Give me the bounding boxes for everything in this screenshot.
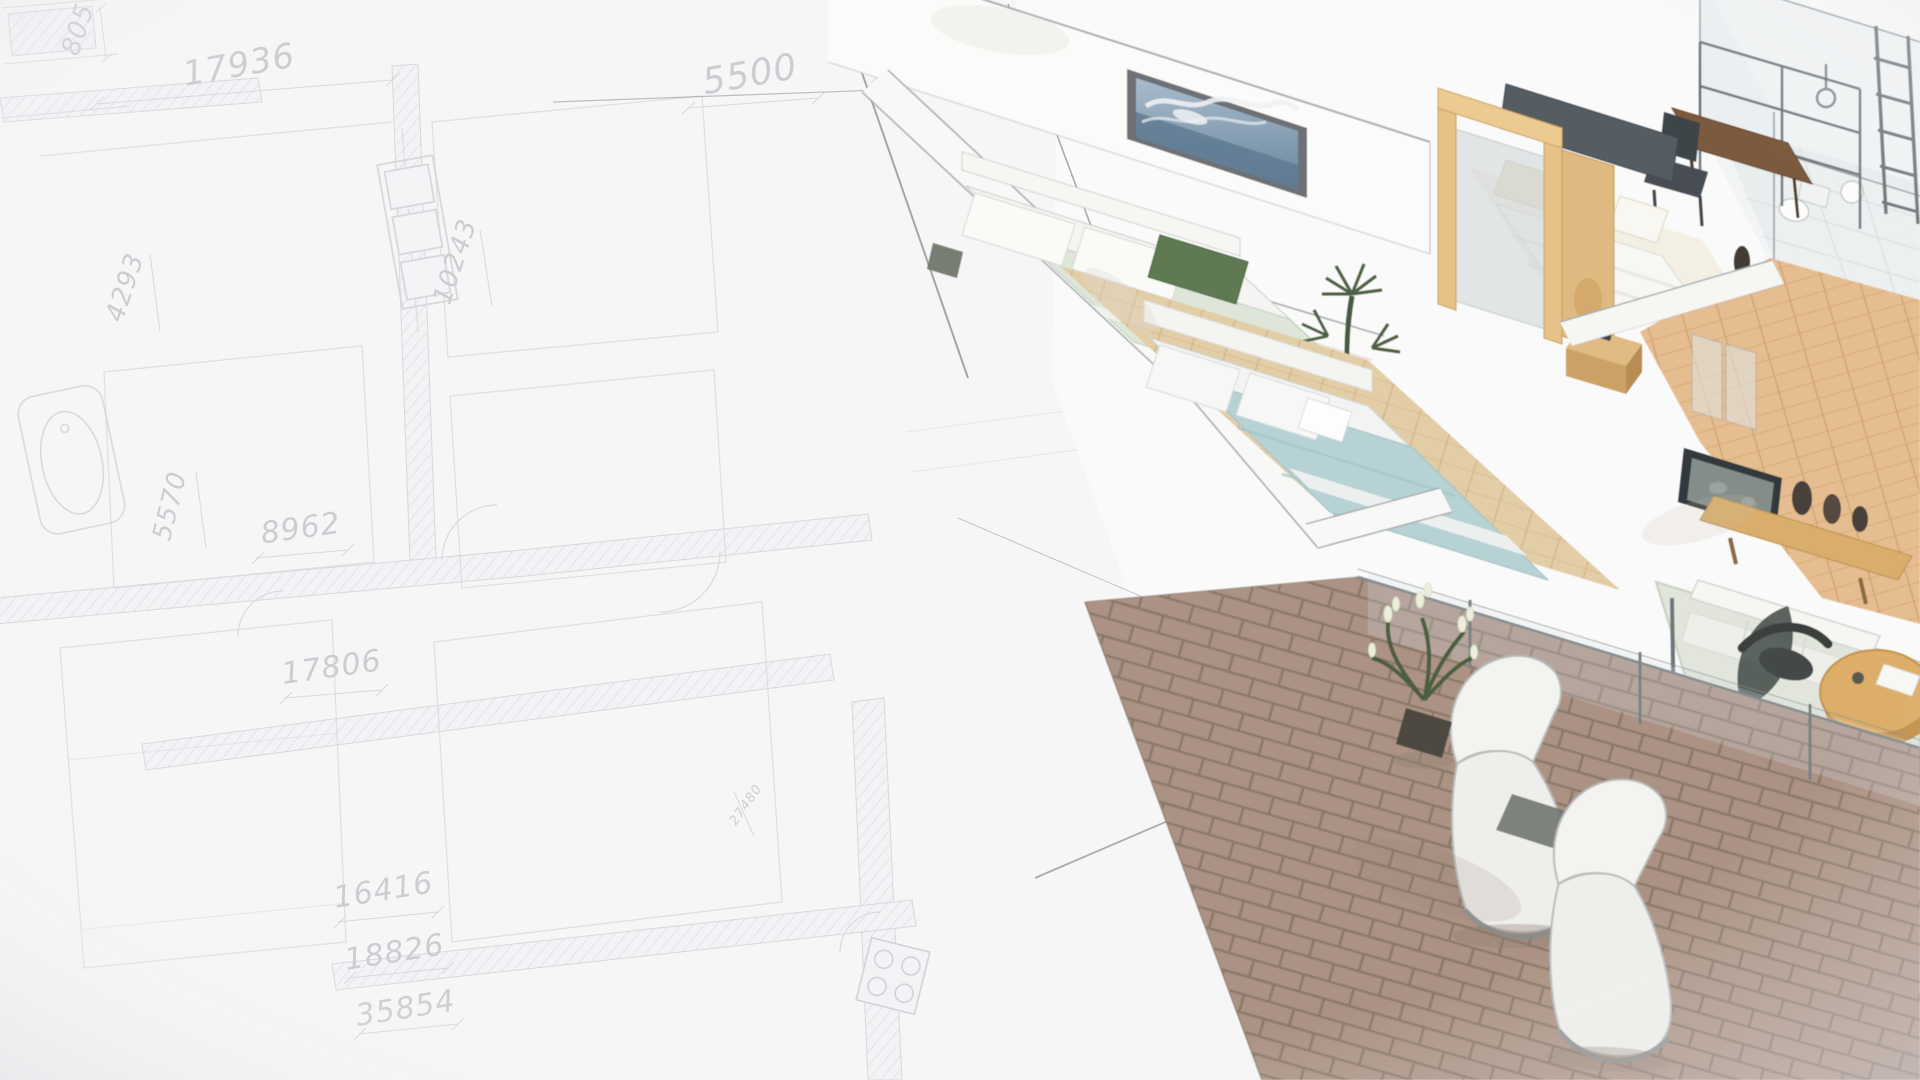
screenshot-root: 805 17936 5500 2189 4293 10243 5570 8962…: [0, 0, 1920, 1080]
scene: 805 17936 5500 2189 4293 10243 5570 8962…: [0, 0, 1920, 1080]
vignette-overlay: [0, 0, 1920, 1080]
